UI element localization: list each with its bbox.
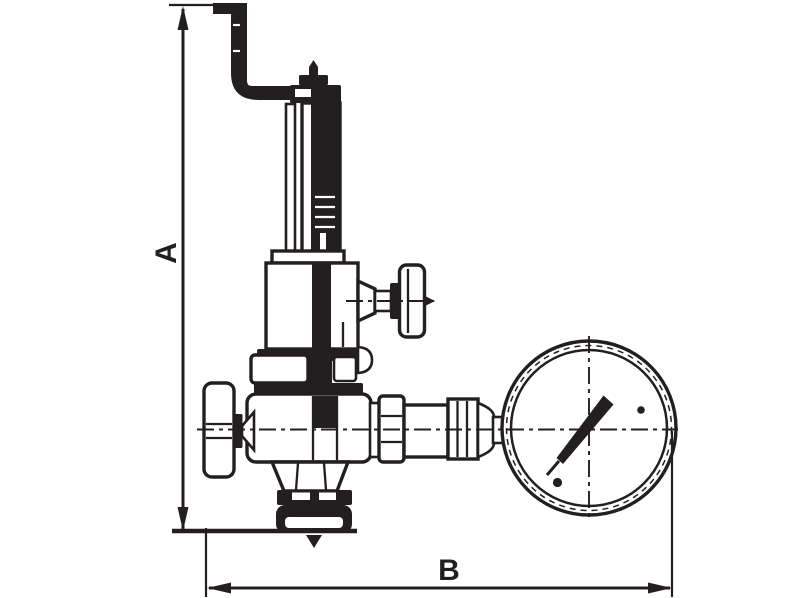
side-rod: [286, 104, 295, 259]
inlet-cone: [242, 412, 254, 450]
gauge-pivot-dot: [553, 478, 562, 487]
dim-a-arrow-up: [178, 6, 189, 30]
side-lug: [358, 347, 372, 373]
valve-body: [247, 394, 371, 462]
dim-a-arrow-down: [178, 507, 189, 531]
relief-pipe: [213, 3, 300, 100]
adjusting-screw-column: [286, 103, 340, 262]
gauge-set-point-dot: [637, 406, 645, 414]
valve-technical-drawing: A B: [0, 0, 800, 598]
bottom-outlet: [272, 462, 352, 548]
drawing-canvas: A B: [0, 0, 800, 598]
dim-b-arrow-right: [648, 583, 672, 594]
dim-label-a: A: [150, 242, 183, 264]
pressure-gauge: [502, 336, 676, 521]
adjusting-cap: [290, 60, 341, 103]
pipe-section: [404, 405, 448, 457]
side-handle: [346, 265, 438, 337]
bonnet-locknut: [251, 355, 363, 394]
dim-label-b: B: [438, 554, 460, 587]
dim-b-arrow-left: [207, 583, 231, 594]
stem-tip: [309, 60, 318, 75]
flow-direction-arrow: [306, 535, 322, 548]
bonnet-top-step: [272, 251, 344, 263]
